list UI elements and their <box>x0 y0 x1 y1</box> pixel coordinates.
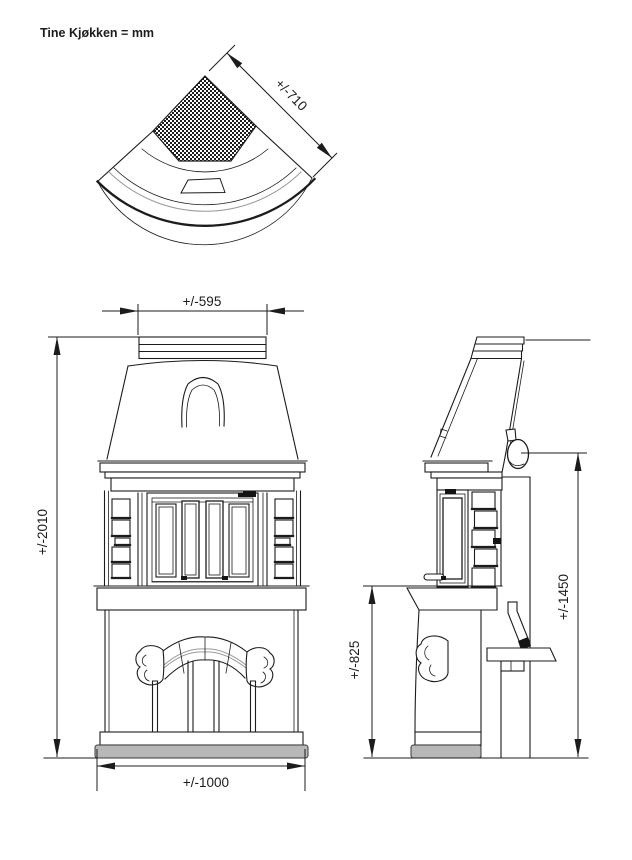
hood-front <box>107 361 298 460</box>
firebox-door-front <box>147 491 258 586</box>
door-hinge <box>222 576 228 580</box>
base-posts-front <box>153 661 256 732</box>
side-view <box>404 337 590 758</box>
mantel-shelf-side <box>423 461 502 490</box>
dim-label-side-flue-height: +/-1450 <box>556 574 571 620</box>
plan-vent-trapezoid <box>181 179 225 194</box>
pilaster-left <box>112 493 142 586</box>
pilaster-right <box>263 493 293 586</box>
mantel-shelf-front <box>98 461 307 491</box>
hatched-corner-area <box>153 76 256 161</box>
dim-label-front-top-width: +/-595 <box>183 294 222 309</box>
fan-left-edge <box>98 131 154 182</box>
hearth-shelf-front <box>94 586 309 610</box>
bench-side <box>487 648 556 757</box>
top-view: +/-710 <box>98 45 338 245</box>
hearth-side <box>404 586 502 610</box>
plinth-base-side <box>411 745 481 758</box>
dim-side-hearth-height: +/-825 <box>347 586 406 757</box>
arch-end-cap-left <box>136 646 164 685</box>
door-latch <box>243 491 256 497</box>
rear-chase-side <box>501 477 530 757</box>
plinth-base-front <box>95 745 308 758</box>
dim-side-flue-height: +/-1450 <box>521 453 587 757</box>
chimney-cap-side <box>471 337 524 359</box>
flue-pipe-side <box>508 602 531 650</box>
flue-stub <box>506 429 516 441</box>
chimney-cap-front <box>139 337 266 359</box>
technical-drawing: Tine Kjøkken = mm +/-710 <box>0 0 632 860</box>
firebox-front <box>105 491 301 586</box>
dim-label-side-hearth-height: +/-825 <box>347 641 362 680</box>
base-side <box>411 610 481 758</box>
hood-vent-arch-inner <box>186 385 219 427</box>
dim-label-front-height: +/-2010 <box>35 509 50 555</box>
base-arch-front <box>136 637 274 687</box>
dim-label-front-base-width: +/-1000 <box>183 775 229 790</box>
plinth-step-side <box>415 732 481 745</box>
firebox-side <box>424 489 501 587</box>
dim-front-top-width: +/-595 <box>102 294 304 335</box>
page-title: Tine Kjøkken = mm <box>40 26 154 40</box>
dim-label-top-diagonal: +/-710 <box>272 76 310 114</box>
pilaster-side <box>472 492 501 587</box>
plinth-step-front <box>100 732 303 745</box>
base-front <box>95 610 308 758</box>
dim-tick <box>313 153 337 177</box>
flue-outlet-circle <box>508 440 529 469</box>
front-view <box>94 337 309 758</box>
door-hinge <box>181 576 187 580</box>
drawing-page: Tine Kjøkken = mm +/-710 <box>0 0 632 860</box>
